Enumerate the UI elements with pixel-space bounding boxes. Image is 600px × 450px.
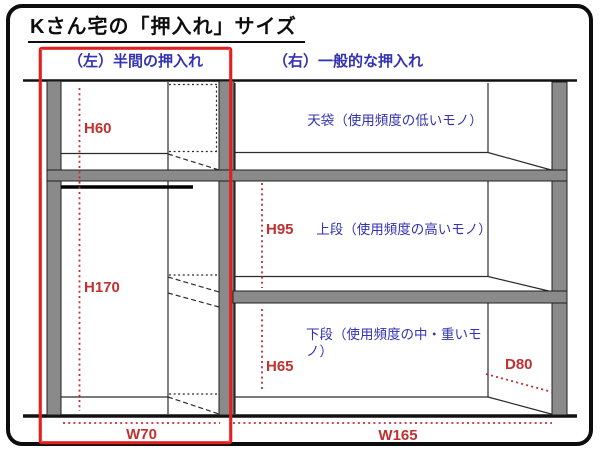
- tenbukuro-shelf: [47, 170, 567, 181]
- right-closet-label: （右）一般的な押入れ: [248, 50, 448, 71]
- h60-dimension-label: H60: [84, 120, 112, 137]
- dimension-lines: [63, 88, 552, 423]
- gedan-label: 下段（使用頻度の中・重いモノ）: [306, 326, 492, 360]
- middle-shelf: [233, 291, 567, 303]
- d80-dimension-line: [486, 374, 552, 392]
- h95-dimension-label: H95: [266, 221, 294, 238]
- gray-structure: [47, 81, 567, 415]
- left-closet-highlight-box: [40, 48, 231, 443]
- tenbukuro-label: 天袋（使用頻度の低いモノ）: [245, 109, 545, 129]
- structure-lines: [61, 82, 553, 415]
- midshelf-depth-diagonal: [488, 277, 553, 293]
- floor-depth-diagonal: [488, 397, 553, 415]
- w165-dimension-label: W165: [243, 427, 553, 444]
- d80-dimension-label: D80: [505, 356, 533, 373]
- closet-size-diagram: Kさん宅の「押入れ」サイズ: [0, 0, 600, 450]
- hidden-edge-dotted-lines: [169, 85, 218, 395]
- jodan-label: 上段（使用頻度の高いモノ）: [254, 218, 554, 238]
- left-closet-label: （左）半間の押入れ: [40, 50, 231, 71]
- hidden-edge-dashed-diagonals: [168, 154, 219, 414]
- h65-dimension-label: H65: [266, 358, 294, 375]
- w70-dimension-label: W70: [63, 426, 220, 443]
- left-pillar: [47, 81, 61, 415]
- h170-dimension-label: H170: [84, 279, 120, 296]
- tenbukuro-depth-diagonal: [488, 153, 553, 171]
- right-pillar: [552, 82, 567, 415]
